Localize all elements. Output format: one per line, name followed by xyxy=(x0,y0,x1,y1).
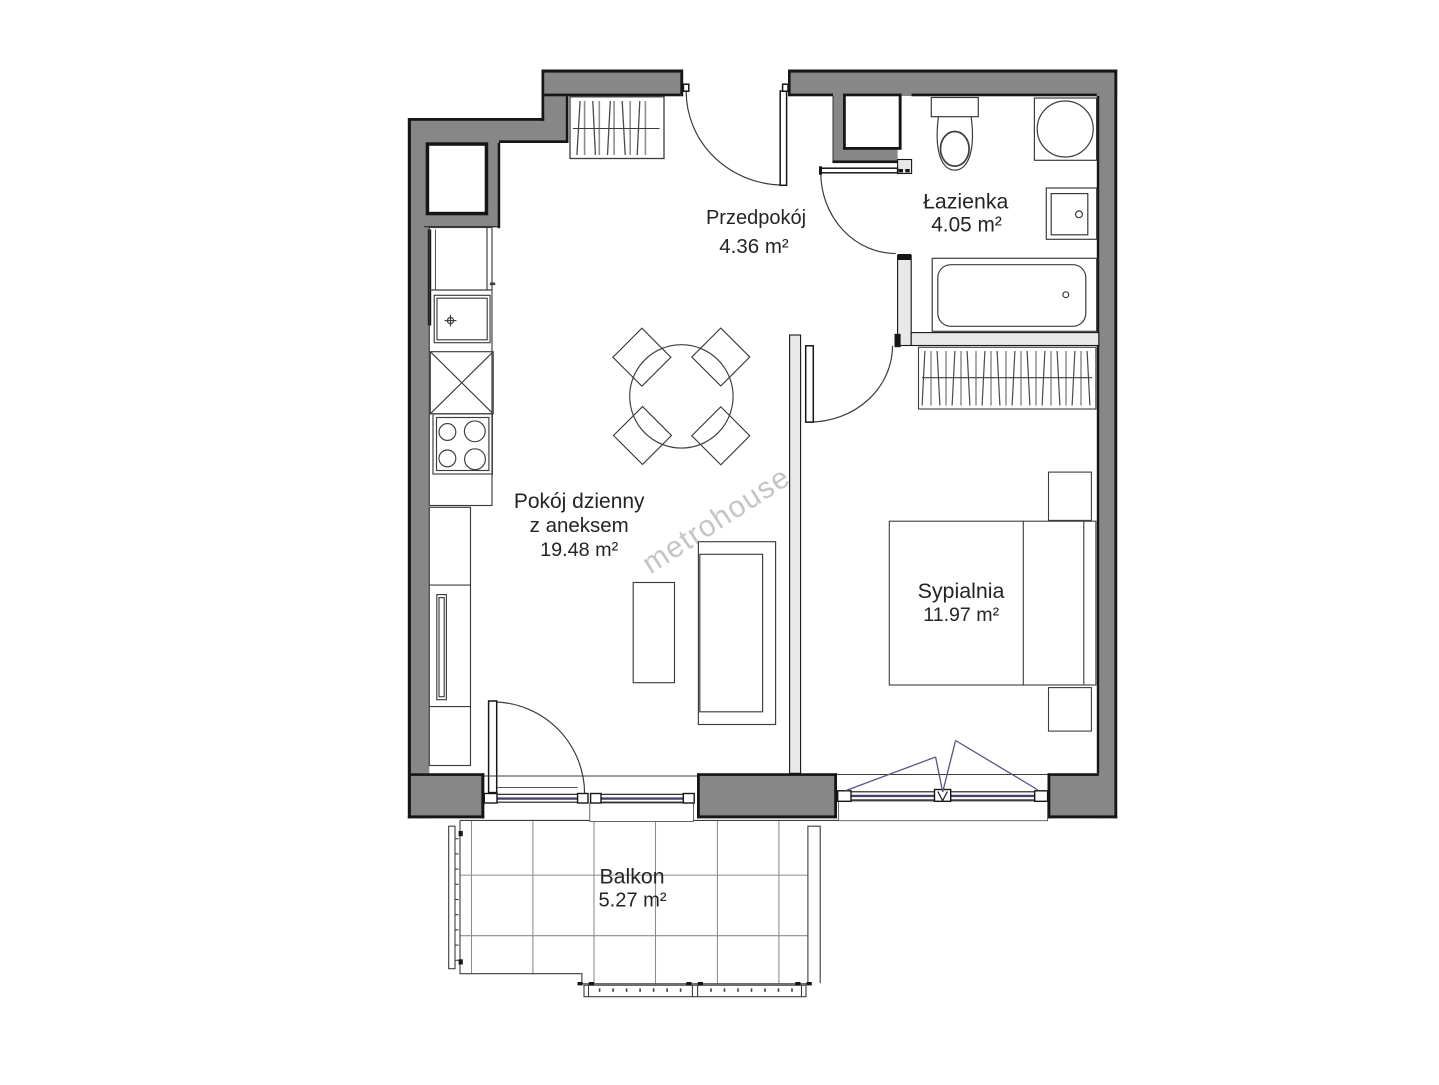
svg-text:4.36 m²: 4.36 m² xyxy=(719,235,789,258)
svg-text:11.97 m²: 11.97 m² xyxy=(923,604,999,626)
svg-text:Pokój dzienny: Pokój dzienny xyxy=(514,490,645,513)
svg-text:z aneksem: z aneksem xyxy=(530,514,629,537)
svg-text:Sypialnia: Sypialnia xyxy=(918,579,1005,603)
svg-text:19.48 m²: 19.48 m² xyxy=(540,539,618,561)
svg-text:Łazienka: Łazienka xyxy=(923,190,1008,214)
svg-text:4.05 m²: 4.05 m² xyxy=(931,213,1002,236)
svg-text:Przedpokój: Przedpokój xyxy=(706,207,806,229)
svg-text:5.27 m²: 5.27 m² xyxy=(598,890,666,912)
svg-text:Balkon: Balkon xyxy=(599,865,664,889)
